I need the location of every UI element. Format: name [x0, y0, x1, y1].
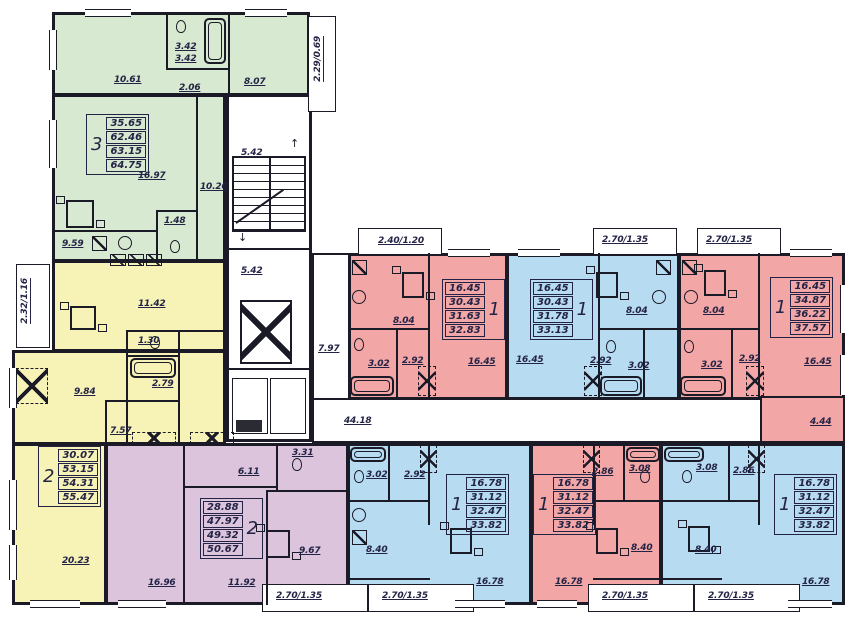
bathtub-icon	[600, 376, 642, 396]
room-count: 1	[536, 496, 551, 514]
room-area-label: 8.04	[626, 306, 647, 316]
chair-icon	[586, 266, 595, 274]
wall	[105, 400, 107, 443]
chair-icon	[98, 324, 107, 332]
area-value: 50.67	[203, 543, 243, 556]
apartment-summary-table: 1 16.45 30.43 31.63 32.83	[442, 279, 505, 340]
apartment-pink-right-corridor-region	[760, 396, 845, 443]
area-value: 35.65	[106, 117, 146, 130]
washer-icon	[146, 254, 162, 266]
bathtub-icon	[664, 447, 704, 462]
room-count: 1	[777, 496, 792, 514]
wall	[598, 328, 680, 330]
stove-icon	[118, 236, 132, 250]
area-value: 30.43	[445, 296, 485, 309]
window	[9, 545, 17, 580]
chair-icon	[620, 292, 629, 300]
toilet-icon	[176, 20, 186, 33]
wall	[183, 443, 185, 605]
area-value: 32.83	[445, 324, 485, 337]
area-value: 47.97	[203, 515, 243, 528]
wall	[660, 578, 722, 580]
room-area-label: 8.40	[366, 545, 387, 555]
apartment-summary-table: 1 16.78 31.12 32.47 33.82	[533, 474, 596, 535]
room-area-label: 3.02	[628, 361, 649, 371]
window	[840, 285, 847, 333]
dimension-label: 2.40/1.20	[378, 236, 424, 246]
hall-area-label: 5.42	[241, 266, 262, 276]
area-value: 16.45	[445, 282, 485, 295]
wall	[276, 443, 278, 490]
area-value: 30.43	[533, 296, 573, 309]
area-value: 33.82	[466, 519, 506, 532]
wall	[731, 328, 733, 400]
area-value: 63.15	[106, 145, 146, 158]
window	[9, 368, 17, 408]
area-value: 54.31	[58, 477, 98, 490]
bathtub-icon	[350, 376, 394, 396]
chair-icon	[728, 290, 737, 298]
washer-icon	[352, 260, 367, 275]
toilet-icon	[292, 458, 302, 471]
wall	[678, 328, 760, 330]
stove-icon	[352, 290, 366, 304]
area-value: 31.12	[553, 491, 593, 504]
balcony-window-icon	[16, 368, 48, 404]
elevator-icon	[240, 300, 292, 364]
room-area-label: 2.86	[733, 466, 754, 476]
area-value: 53.15	[58, 463, 98, 476]
bathtub-icon	[204, 18, 226, 64]
area-value: 36.22	[790, 308, 830, 321]
toilet-icon	[606, 340, 616, 353]
dining-table-icon	[66, 200, 94, 228]
toilet-icon	[354, 470, 364, 483]
area-value: 30.07	[58, 449, 98, 462]
bathtub-icon	[130, 358, 176, 378]
wall	[623, 443, 625, 500]
room-area-label: 3.42	[175, 42, 196, 52]
window	[9, 480, 17, 530]
chair-icon	[474, 548, 483, 556]
room-area-label: 8.40	[695, 545, 716, 555]
dimension-label: 2.70/1.35	[708, 591, 754, 601]
dining-table-icon	[596, 528, 618, 554]
area-value: 16.78	[466, 477, 506, 490]
area-value: 31.12	[466, 491, 506, 504]
area-value: 16.45	[533, 282, 573, 295]
area-value: 28.88	[203, 501, 243, 514]
washer-icon	[92, 236, 107, 251]
stairs-icon	[232, 156, 306, 232]
dimension-label: 2.70/1.35	[382, 591, 428, 601]
stairs-arrow-up-icon: ↑	[290, 138, 299, 149]
washer-icon	[352, 530, 367, 545]
floor-plan: ↑ ↓	[0, 0, 847, 618]
wall	[52, 230, 156, 232]
room-area-label: 3.08	[629, 464, 650, 474]
room-area-label: 8.07	[244, 77, 265, 87]
washer-icon	[128, 254, 144, 266]
room-area-label: 8.40	[631, 543, 652, 553]
room-area-label: 1.30	[138, 336, 159, 346]
area-value: 16.78	[794, 477, 834, 490]
dimension-label: 2.70/1.35	[602, 591, 648, 601]
area-value: 33.13	[533, 324, 573, 337]
room-area-label: 1.48	[164, 216, 185, 226]
wall	[593, 578, 662, 580]
wall	[226, 248, 312, 250]
wall	[388, 443, 390, 500]
area-value: 32.47	[553, 505, 593, 518]
chair-icon	[56, 196, 65, 204]
area-value: 64.75	[106, 159, 146, 172]
room-area-label: 3.31	[292, 448, 313, 458]
room-area-label: 8.04	[703, 306, 724, 316]
apartment-summary-table: 2 28.88 47.97 49.32 50.67	[200, 498, 263, 559]
room-count: 3	[89, 136, 104, 154]
stairs-arrow-down-icon: ↓	[238, 232, 247, 243]
window	[245, 9, 287, 17]
corridor-main-region	[312, 398, 762, 443]
window	[448, 249, 490, 257]
wall	[728, 443, 730, 500]
dimension-label: 2.32/1.16	[20, 278, 30, 324]
wall	[126, 330, 226, 332]
wall	[266, 490, 349, 492]
area-value: 32.47	[794, 505, 834, 518]
window	[790, 249, 832, 257]
apartment-summary-table: 3 35.65 62.46 63.15 64.75	[86, 114, 149, 175]
window	[455, 600, 505, 608]
room-count: 2	[245, 520, 260, 538]
room-area-label: 9.67	[299, 546, 320, 556]
window	[30, 600, 80, 608]
toilet-icon	[684, 340, 694, 353]
washer-icon	[656, 260, 671, 275]
room-area-label: 2.92	[739, 354, 760, 364]
corridor-area-label: 7.97	[318, 344, 339, 354]
area-value: 32.47	[466, 505, 506, 518]
apartment-summary-table: 1 16.45 30.43 31.78 33.13	[530, 279, 593, 340]
wall	[593, 500, 662, 502]
dining-table-icon	[596, 272, 618, 298]
area-value: 33.82	[794, 519, 834, 532]
washer-icon	[110, 254, 126, 266]
room-area-label: 3.02	[701, 360, 722, 370]
wall	[126, 355, 180, 357]
dimension-label: 2.29/0.69	[313, 36, 323, 82]
room-area-label: 16.45	[804, 357, 831, 367]
chair-icon	[620, 548, 629, 556]
room-area-label: 9.84	[74, 387, 95, 397]
wall	[183, 486, 278, 488]
chair-icon	[426, 292, 435, 300]
room-area-label: 11.42	[138, 299, 165, 309]
balcony-door-icon	[420, 445, 437, 473]
chair-icon	[60, 302, 69, 310]
room-area-label: 16.96	[148, 578, 175, 588]
window	[118, 600, 166, 608]
apartment-summary-table: 1 16.45 34.87 36.22 37.57	[770, 277, 833, 338]
dining-table-icon	[402, 272, 424, 298]
window	[518, 249, 560, 257]
room-area-label: 7.57	[110, 426, 131, 436]
area-value: 31.63	[445, 310, 485, 323]
stove-icon	[652, 290, 666, 304]
apartment-summary-table: 2 30.07 53.15 54.31 55.47	[38, 446, 101, 507]
room-area-label: 16.78	[802, 577, 829, 587]
area-value: 49.32	[203, 529, 243, 542]
wall	[347, 578, 430, 580]
room-count: 2	[41, 468, 56, 486]
room-area-label: 3.02	[368, 359, 389, 369]
room-count: 1	[487, 301, 502, 319]
room-area-label: 10.26	[200, 182, 227, 192]
room-area-label: 16.78	[555, 577, 582, 587]
room-area-label: 2.92	[590, 356, 611, 366]
window	[788, 600, 832, 608]
chair-icon	[392, 266, 401, 274]
room-count: 1	[575, 301, 590, 319]
room-area-label: 3.02	[366, 470, 387, 480]
balcony-door-icon	[418, 366, 436, 396]
stairs-area-label: 5.42	[241, 148, 262, 158]
room-area-label: 2.92	[404, 470, 425, 480]
window	[85, 9, 131, 17]
chair-icon	[96, 220, 105, 228]
room-count: 1	[773, 299, 788, 317]
dining-table-icon	[70, 306, 96, 330]
room-area-label: 2.79	[152, 379, 173, 389]
room-count: 1	[449, 496, 464, 514]
window	[49, 30, 57, 70]
chair-icon	[678, 520, 687, 528]
dimension-label: 2.70/1.35	[706, 235, 752, 245]
wall	[105, 400, 180, 402]
room-area-label: 3.08	[696, 463, 717, 473]
room-area-label: 3.42	[175, 54, 196, 64]
wall	[226, 368, 312, 370]
wall	[228, 12, 230, 94]
wall	[660, 500, 760, 502]
room-area-label: 20.23	[62, 556, 89, 566]
bathtub-icon	[350, 447, 386, 462]
dining-table-icon	[704, 270, 726, 296]
room-area-label: 16.78	[476, 577, 503, 587]
area-value: 33.82	[553, 519, 593, 532]
balcony-window-icon	[190, 432, 234, 444]
room-area-label: 2.06	[179, 83, 200, 93]
window	[840, 355, 847, 395]
wall	[396, 328, 398, 400]
balcony-window-icon	[132, 432, 176, 444]
room-area-label: 9.59	[62, 239, 83, 249]
wall	[166, 68, 230, 70]
stove-icon	[684, 290, 698, 304]
room-area-label: 11.92	[228, 578, 255, 588]
wall	[348, 328, 430, 330]
bathtub-icon	[626, 447, 660, 462]
room-area-label: 16.45	[516, 355, 543, 365]
dining-table-icon	[266, 530, 290, 558]
room-area-label: 4.44	[810, 417, 831, 427]
apartment-summary-table: 1 16.78 31.12 32.47 33.82	[446, 474, 509, 535]
dimension-label: 2.70/1.35	[276, 591, 322, 601]
wall	[166, 12, 168, 70]
room-area-label: 8.04	[393, 316, 414, 326]
area-value: 31.78	[533, 310, 573, 323]
area-value: 31.12	[794, 491, 834, 504]
toilet-icon	[682, 470, 692, 483]
area-value: 62.46	[106, 131, 146, 144]
room-area-label: 6.11	[238, 467, 259, 477]
room-area-label: 2.92	[402, 356, 423, 366]
washer-icon	[682, 260, 697, 275]
area-value: 16.45	[790, 280, 830, 293]
wall	[156, 210, 196, 212]
area-value: 16.78	[553, 477, 593, 490]
bathtub-icon	[680, 376, 726, 396]
balcony-door-icon	[746, 366, 764, 396]
wall	[178, 330, 180, 443]
vestibule-dark-block	[236, 420, 262, 432]
toilet-icon	[170, 240, 180, 253]
apartment-summary-table: 1 16.78 31.12 32.47 33.82	[774, 474, 837, 535]
room-area-label: 10.61	[114, 75, 141, 85]
area-value: 55.47	[58, 491, 98, 504]
area-value: 34.87	[790, 294, 830, 307]
window	[49, 120, 57, 168]
stove-icon	[352, 508, 366, 522]
area-value: 37.57	[790, 322, 830, 335]
wall	[196, 94, 198, 262]
wall	[347, 500, 430, 502]
corridor-area-label: 44.18	[344, 416, 371, 426]
vestibule-box-2	[270, 378, 306, 434]
room-area-label: 16.45	[468, 357, 495, 367]
toilet-icon	[354, 338, 364, 351]
window	[537, 600, 577, 608]
dimension-label: 2.70/1.35	[602, 235, 648, 245]
